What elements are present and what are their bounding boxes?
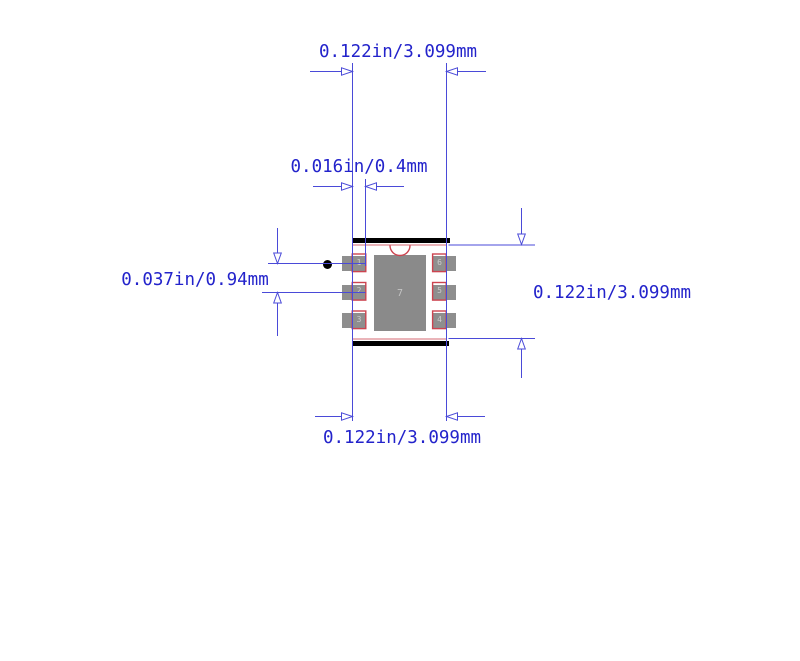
dimension-bottom-width [315,413,485,420]
silkscreen-bar-bottom [352,341,449,346]
dimension-arrow-icon [342,413,353,420]
dimension-top-width [310,68,486,75]
pad-7-number: 7 [397,288,403,299]
dimension-arrow-icon [274,293,282,304]
dimension-label-pin-pitch: 0.037in/0.94mm [121,271,269,289]
pin1-dot-icon [323,260,332,269]
dimension-label-pin-length: 0.016in/0.4mm [291,158,428,176]
dimension-arrow-icon [274,253,282,264]
dimension-arrow-icon [518,234,526,245]
dimension-pin-length [313,183,404,190]
pad-2-number: 2 [352,283,366,300]
pin1-notch-arc-icon [390,246,410,256]
pad-5-number: 5 [433,283,447,300]
pad-6-number: 6 [433,254,447,271]
pad-3-number: 3 [352,311,366,328]
pad-1-number: 1 [352,254,366,271]
dimension-label-bottom-width: 0.122in/3.099mm [323,429,481,447]
dimension-label-top-width: 0.122in/3.099mm [319,43,477,61]
pad-7-thermal: 7 [374,255,426,331]
dimension-label-right-height: 0.122in/3.099mm [533,284,691,302]
dimension-arrow-icon [447,68,458,75]
silkscreen-bar-top [353,238,450,244]
footprint-drawing-canvas: 7 1 2 3 6 5 4 [0,0,800,661]
dimension-arrow-icon [518,339,526,350]
pad-4-number: 4 [433,311,447,328]
dimension-arrow-icon [342,183,353,190]
dimension-arrow-icon [342,68,353,75]
dimension-arrow-icon [447,413,458,420]
dimension-right-height [449,208,536,378]
dimension-arrow-icon [366,183,377,190]
